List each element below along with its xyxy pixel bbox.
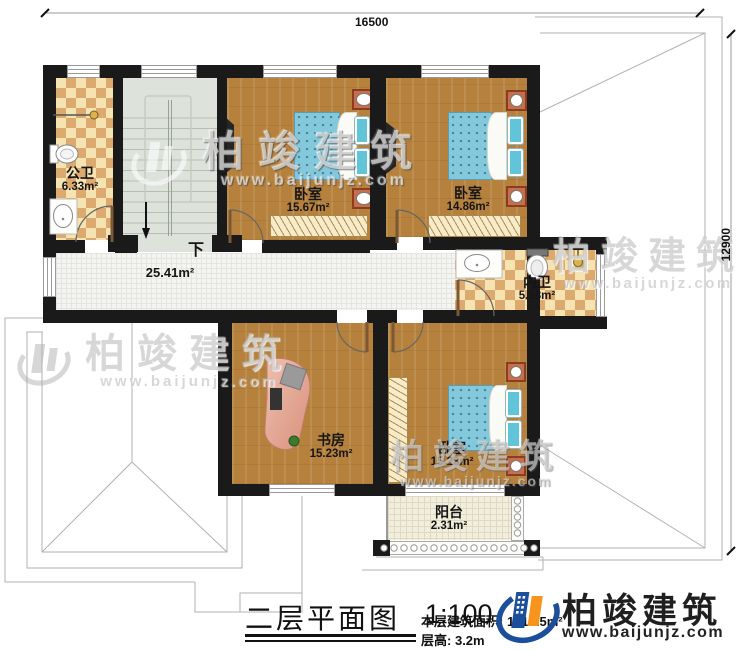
room-label-study: 书房15.23m² bbox=[310, 433, 353, 460]
title-underline-thin bbox=[245, 640, 416, 642]
room-label-bedroom-3: 卧室15.23m² bbox=[431, 441, 474, 468]
door-arc-bedroom-3 bbox=[393, 322, 423, 352]
computer-monitor bbox=[270, 388, 282, 410]
plan-detail-lines bbox=[0, 0, 750, 651]
brand-url: www.baijunjz.com bbox=[562, 624, 724, 642]
brand-logo-icon bbox=[492, 580, 564, 648]
door-arcs bbox=[76, 206, 494, 352]
floor-height-label: 层高: bbox=[421, 633, 451, 648]
room-label-hallway: 25.41m² bbox=[146, 266, 194, 280]
stairs bbox=[123, 96, 217, 239]
study-desk bbox=[265, 358, 310, 449]
door-arc-bedroom-2 bbox=[397, 210, 430, 243]
shower-head bbox=[90, 111, 98, 119]
door-arc-ensuite-bath bbox=[458, 280, 494, 316]
door-arc-bedroom-1 bbox=[230, 210, 263, 243]
room-label-bedroom-1: 卧室15.67m² bbox=[287, 187, 330, 214]
floor-plan-canvas: 公卫6.33m² 卧室15.67m² 卧室14.86m² 内卫5.58m² 下 … bbox=[0, 0, 750, 651]
room-label-bedroom-2: 卧室14.86m² bbox=[447, 186, 490, 213]
title-underline bbox=[245, 634, 416, 637]
door-arc-public-bath bbox=[76, 206, 112, 242]
dimension-right: 12900 bbox=[719, 228, 733, 261]
room-label-ensuite-bath: 内卫5.58m² bbox=[519, 275, 555, 302]
shower-head bbox=[574, 258, 583, 267]
plant bbox=[289, 436, 299, 446]
sink bbox=[465, 255, 490, 272]
room-label-balcony: 阳台2.31m² bbox=[431, 505, 467, 532]
door-arc-study bbox=[337, 322, 367, 352]
plan-title: 二层平面图 bbox=[245, 597, 400, 637]
floor-area-label: 本层建筑面积: bbox=[421, 614, 503, 629]
floor-height-row: 层高: 3.2m bbox=[421, 630, 485, 649]
floor-height-value: 3.2m bbox=[455, 633, 485, 648]
sink bbox=[54, 205, 73, 228]
stairs-down-label: 下 bbox=[188, 243, 204, 260]
room-label-public-bath: 公卫6.33m² bbox=[62, 166, 98, 193]
dimension-top: 16500 bbox=[355, 15, 388, 29]
